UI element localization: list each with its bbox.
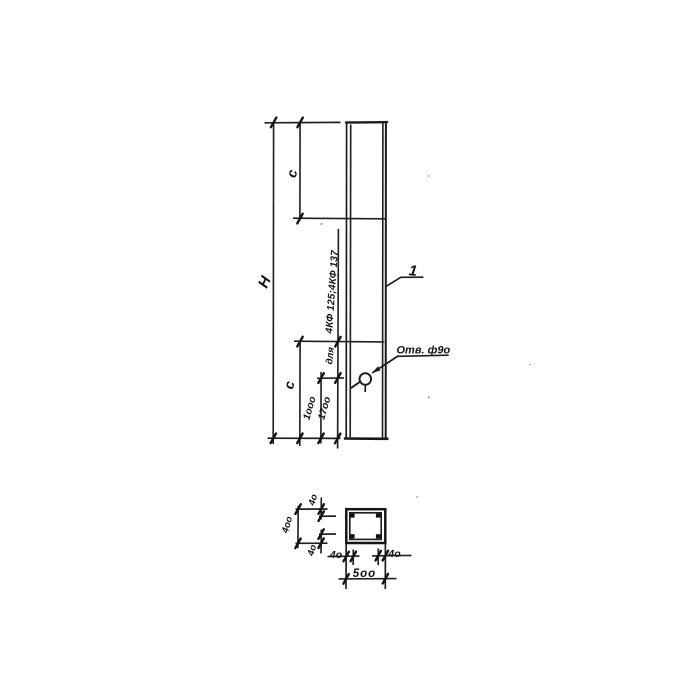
svg-text:для: для	[324, 346, 337, 365]
svg-text:4o: 4o	[387, 548, 401, 560]
svg-text:1: 1	[408, 262, 418, 280]
svg-text:4o: 4o	[329, 549, 343, 561]
svg-text:5oo: 5oo	[353, 568, 376, 580]
